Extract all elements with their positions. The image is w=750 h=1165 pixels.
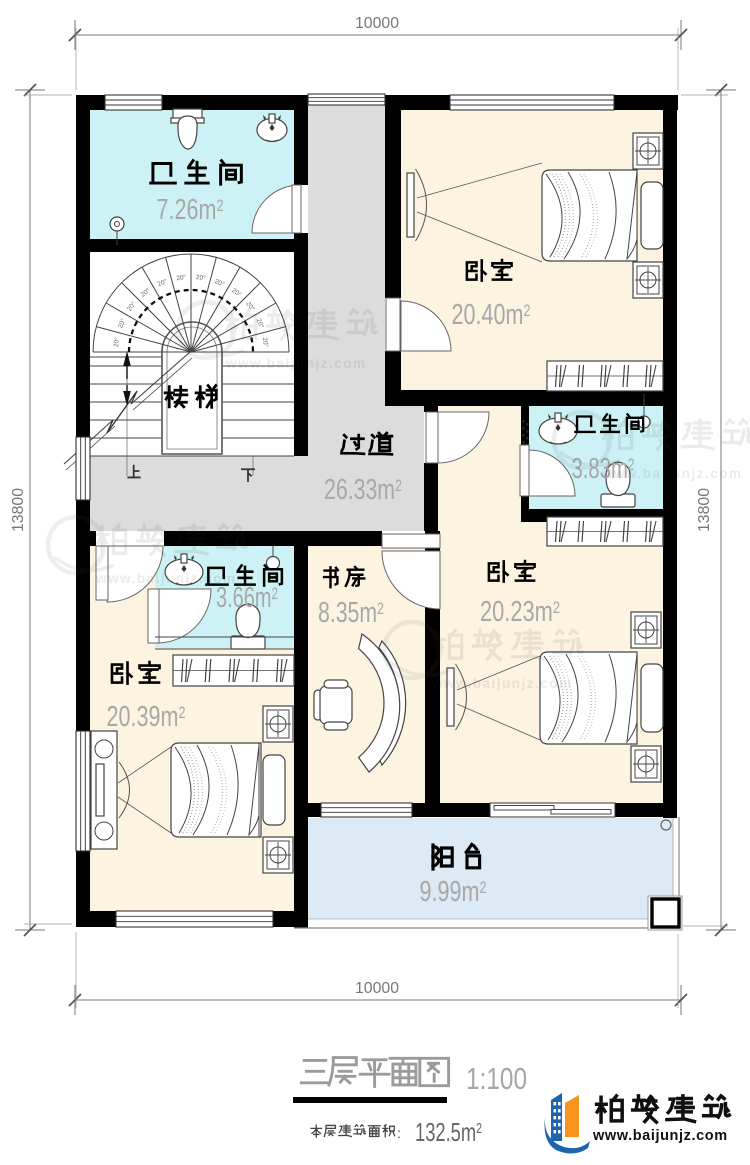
svg-text:8.35m2: 8.35m2	[318, 597, 384, 629]
svg-text:www.baijunjz.com: www.baijunjz.com	[95, 571, 237, 586]
svg-text:www.baijunjz.com: www.baijunjz.com	[592, 1128, 728, 1144]
svg-text:www.baijunjz.com: www.baijunjz.com	[431, 676, 573, 691]
svg-text:10000: 10000	[355, 980, 399, 997]
svg-text::: :	[397, 1125, 401, 1141]
svg-text:20.23m2: 20.23m2	[480, 596, 560, 628]
svg-text:13800: 13800	[696, 488, 713, 532]
svg-text:13800: 13800	[10, 488, 27, 532]
svg-text:20°: 20°	[112, 336, 121, 347]
svg-text:3.66m2: 3.66m2	[216, 582, 278, 614]
svg-text:9.99m2: 9.99m2	[420, 876, 487, 908]
svg-text:20°: 20°	[261, 337, 270, 348]
svg-text:20°: 20°	[176, 273, 187, 282]
svg-text:20.40m2: 20.40m2	[452, 299, 531, 331]
svg-text:20.39m2: 20.39m2	[107, 701, 186, 733]
svg-text:26.33m2: 26.33m2	[324, 474, 402, 506]
svg-text:132.5m2: 132.5m2	[415, 1117, 482, 1147]
svg-text:10000: 10000	[355, 15, 399, 32]
svg-text:1:100: 1:100	[466, 1061, 527, 1096]
svg-text:20°: 20°	[195, 273, 206, 282]
svg-text:7.26m2: 7.26m2	[157, 194, 224, 226]
svg-text:www.baijunjz.com: www.baijunjz.com	[225, 356, 367, 371]
